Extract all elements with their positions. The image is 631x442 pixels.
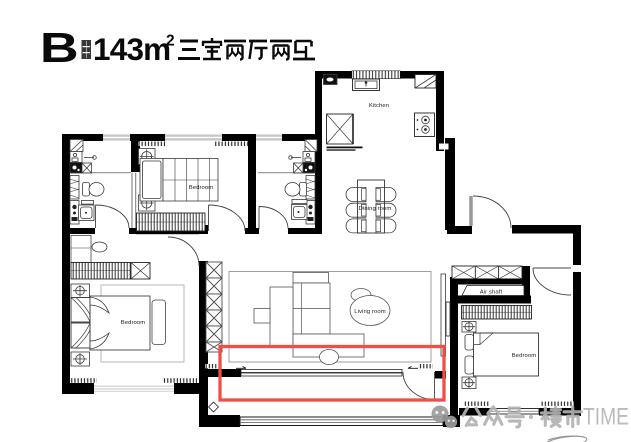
svg-text:TIME: TIME <box>583 404 629 431</box>
svg-text:2: 2 <box>166 33 175 50</box>
svg-text:Dining room: Dining room <box>359 206 392 212</box>
svg-text:Bedroom: Bedroom <box>189 185 214 191</box>
svg-text:Bedroom: Bedroom <box>512 353 537 359</box>
svg-text:Living room: Living room <box>354 309 386 315</box>
svg-text:Air shaft: Air shaft <box>480 290 503 296</box>
svg-text:Kitchen: Kitchen <box>369 103 389 109</box>
svg-text:143m: 143m <box>93 31 170 67</box>
svg-text:B: B <box>40 25 79 72</box>
svg-text:Bedroom: Bedroom <box>121 320 146 326</box>
